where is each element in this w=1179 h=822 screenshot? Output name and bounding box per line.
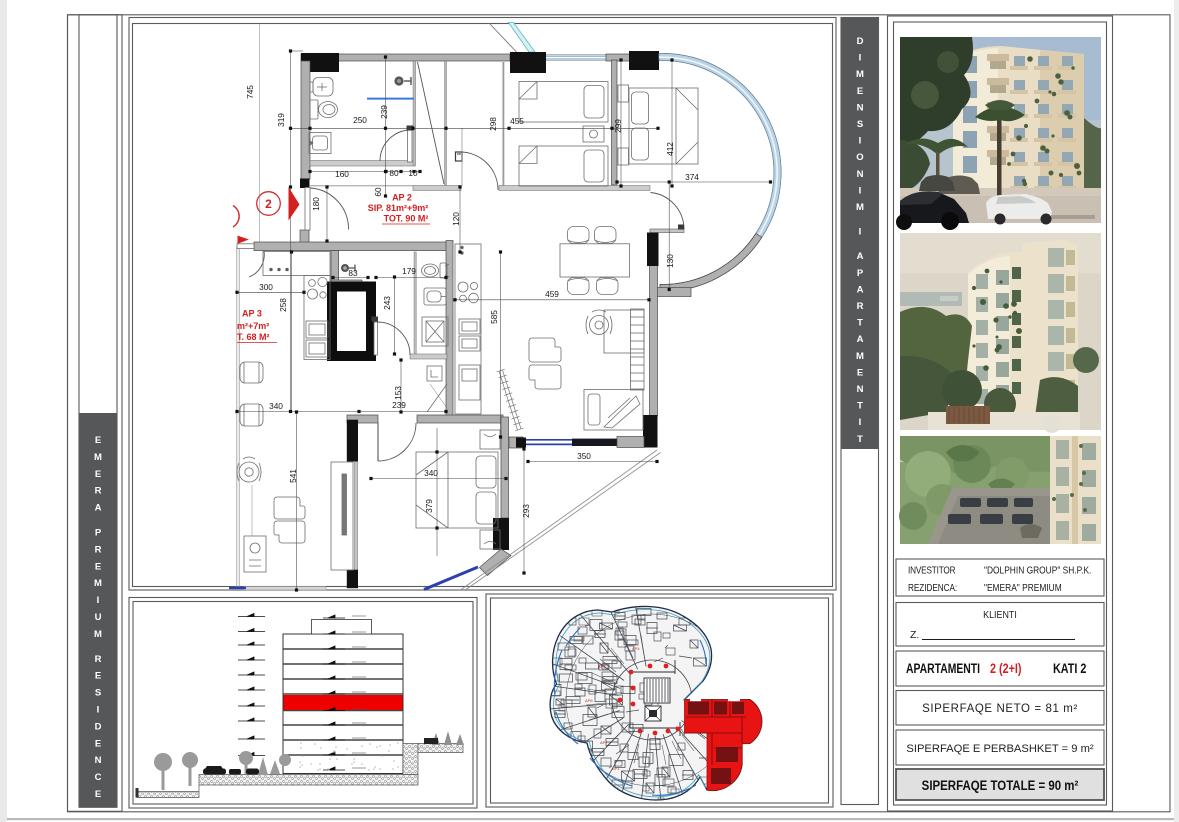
svg-text:300: 300 — [259, 282, 273, 292]
svg-text:"EMERA" PREMIUM: "EMERA" PREMIUM — [984, 582, 1062, 593]
svg-text:120: 120 — [451, 212, 461, 226]
svg-text:REZIDENCA:: REZIDENCA: — [908, 582, 957, 593]
svg-text:180: 180 — [311, 197, 321, 211]
svg-text:KLIENTI: KLIENTI — [983, 609, 1017, 621]
svg-text:585: 585 — [489, 310, 499, 324]
svg-text:Z.: Z. — [910, 629, 919, 641]
svg-text:412: 412 — [665, 142, 675, 156]
svg-text:m²+7m²: m²+7m² — [237, 321, 269, 331]
svg-text:80: 80 — [389, 168, 399, 178]
svg-text:153: 153 — [393, 386, 403, 400]
svg-text:293: 293 — [521, 504, 531, 518]
svg-text:AP 2: AP 2 — [392, 193, 412, 203]
svg-text:AP 3: AP 3 — [242, 309, 262, 319]
svg-text:60: 60 — [373, 187, 383, 197]
svg-text:250: 250 — [353, 115, 367, 125]
svg-text:T. 68 M²: T. 68 M² — [237, 332, 270, 342]
svg-text:239: 239 — [392, 400, 406, 410]
svg-text:AP4: AP4 — [632, 646, 640, 651]
svg-text:160: 160 — [335, 169, 349, 179]
svg-text:340: 340 — [424, 468, 438, 478]
svg-text:541: 541 — [288, 469, 298, 483]
svg-text:374: 374 — [685, 172, 699, 182]
svg-text:AP5: AP5 — [598, 664, 606, 669]
svg-text:2 (2+I): 2 (2+I) — [990, 661, 1022, 676]
svg-text:745: 745 — [245, 85, 255, 99]
svg-text:APARTAMENTI: APARTAMENTI — [906, 661, 980, 677]
svg-text:258: 258 — [278, 298, 288, 312]
svg-text:10: 10 — [408, 168, 418, 178]
svg-text:SIPERFAQE E PERBASHKET = 9 m²: SIPERFAQE E PERBASHKET = 9 m² — [906, 743, 1094, 755]
svg-text:"DOLPHIN GROUP" SH.P.K.: "DOLPHIN GROUP" SH.P.K. — [984, 565, 1091, 576]
svg-text:AP1: AP1 — [612, 766, 620, 771]
svg-text:INVESTITOR: INVESTITOR — [908, 565, 956, 576]
svg-text:KATI 2: KATI 2 — [1053, 661, 1087, 676]
svg-text:299: 299 — [613, 119, 623, 133]
svg-text:239: 239 — [379, 105, 389, 119]
svg-text:83: 83 — [348, 268, 358, 278]
svg-text:319: 319 — [276, 113, 286, 127]
svg-text:130: 130 — [665, 254, 675, 268]
svg-text:SIP. 81m²+9m²: SIP. 81m²+9m² — [368, 203, 429, 213]
svg-text:179: 179 — [402, 266, 416, 276]
svg-text:350: 350 — [577, 451, 591, 461]
svg-text:AP7: AP7 — [600, 740, 608, 745]
svg-text:459: 459 — [545, 289, 559, 299]
svg-text:243: 243 — [382, 296, 392, 310]
svg-text:340: 340 — [269, 401, 283, 411]
svg-text:AP6: AP6 — [585, 698, 593, 703]
svg-text:TOT. 90 M²: TOT. 90 M² — [384, 214, 429, 224]
svg-text:455: 455 — [510, 116, 524, 126]
svg-text:379: 379 — [424, 499, 434, 513]
svg-text:298: 298 — [488, 117, 498, 131]
svg-text:SIPERFAQE TOTALE = 90 m²: SIPERFAQE TOTALE = 90 m² — [922, 778, 1079, 793]
svg-text:SIPERFAQE NETO = 81 m²: SIPERFAQE NETO = 81 m² — [922, 703, 1078, 715]
svg-text:2: 2 — [265, 197, 272, 211]
svg-text:EMERAPREMIUMRESIDENCE: EMERAPREMIUMRESIDENCE — [94, 435, 102, 800]
